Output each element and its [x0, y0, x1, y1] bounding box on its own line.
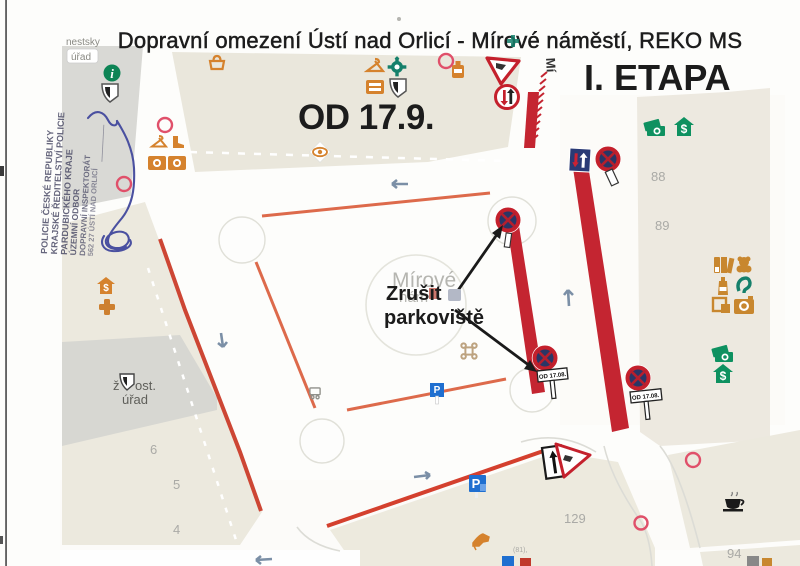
- svg-text:$: $: [681, 122, 688, 136]
- svg-text:89: 89: [655, 218, 669, 233]
- svg-text:4: 4: [173, 522, 180, 537]
- svg-text:(81),: (81),: [513, 547, 527, 554]
- svg-text:88: 88: [651, 169, 665, 184]
- svg-text:ost.: ost.: [135, 378, 156, 393]
- svg-text:nestsky: nestsky: [66, 37, 100, 48]
- svg-text:úřad: úřad: [71, 52, 91, 63]
- svg-text:i: i: [110, 66, 114, 81]
- svg-text:6: 6: [150, 442, 157, 457]
- svg-text:$: $: [720, 369, 727, 383]
- svg-text:Mí: Mí: [543, 57, 559, 73]
- svg-text:úřad: úřad: [122, 392, 148, 407]
- svg-text:Dopravní omezení Ústí nad Orli: Dopravní omezení Ústí nad Orlicí - Mírov…: [118, 28, 743, 53]
- svg-text:129: 129: [564, 511, 586, 526]
- svg-text:$: $: [103, 283, 109, 294]
- svg-text:5: 5: [173, 477, 180, 492]
- svg-text:Zrušit: Zrušit: [386, 283, 442, 305]
- svg-text:OD 17.9.: OD 17.9.: [298, 98, 434, 137]
- svg-text:ž: ž: [113, 378, 120, 393]
- svg-text:P: P: [472, 476, 481, 491]
- svg-text:P: P: [434, 385, 441, 396]
- svg-text:parkoviště: parkoviště: [384, 307, 484, 329]
- svg-text:I. ETAPA: I. ETAPA: [584, 57, 731, 98]
- svg-text:94: 94: [727, 546, 741, 561]
